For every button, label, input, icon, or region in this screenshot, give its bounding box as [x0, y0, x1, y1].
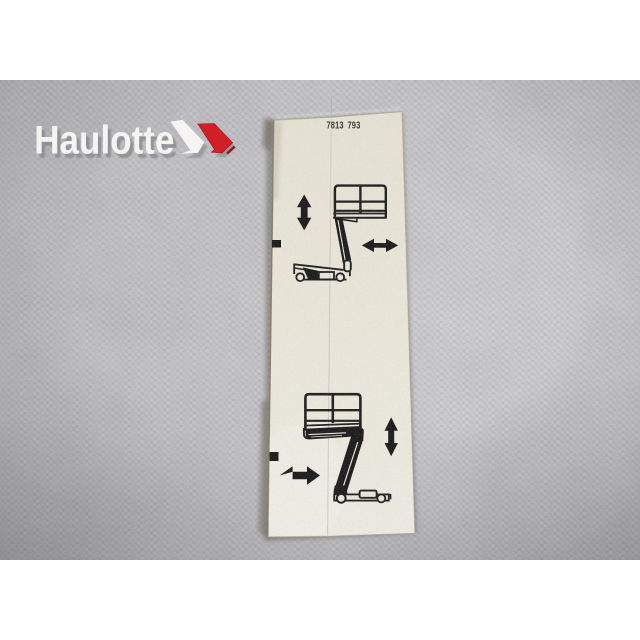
svg-text:Haulotte: Haulotte [34, 117, 174, 162]
